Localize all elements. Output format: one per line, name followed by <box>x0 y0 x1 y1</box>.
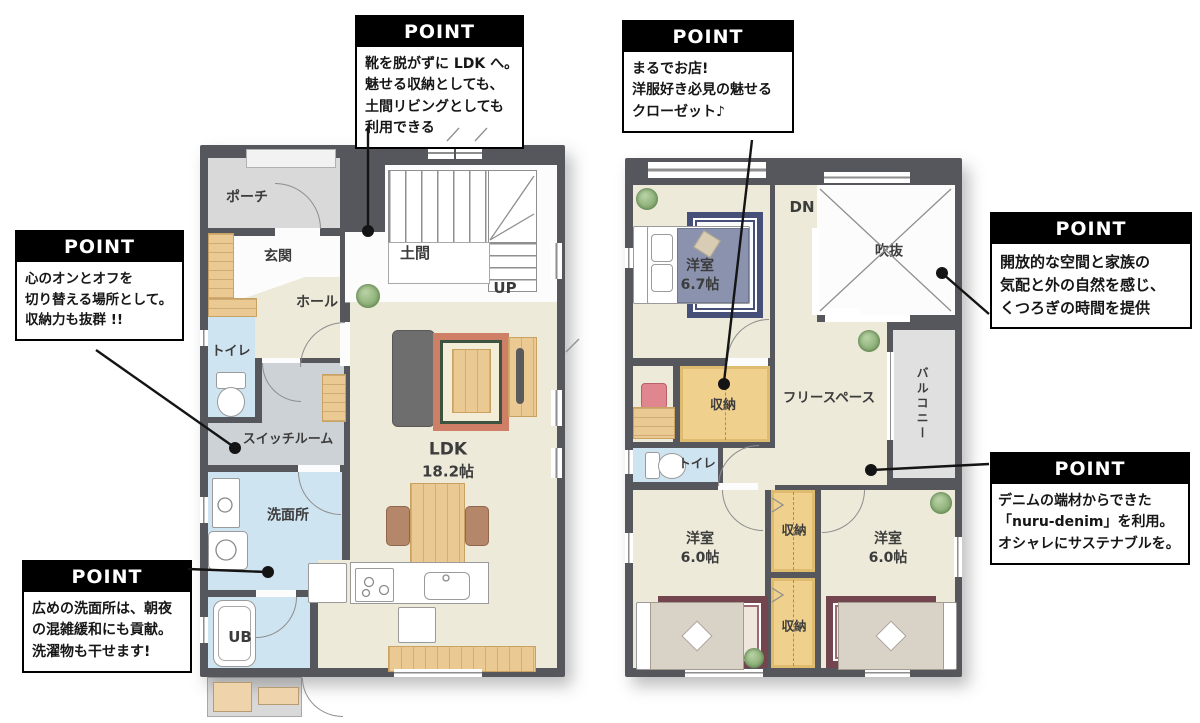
room-label-closet-main: 収納 <box>710 397 736 415</box>
label-dn: DN <box>789 197 814 217</box>
room-label-switch-room: スイッチルーム <box>243 431 334 449</box>
plant-icon <box>744 648 764 668</box>
dining-table <box>410 483 465 567</box>
callout-line: の混雑緩和にも貢献。 <box>32 620 182 641</box>
plant-icon <box>356 284 380 308</box>
room-label-balcony: バルコニー <box>914 367 930 442</box>
room-label-closet-lower: 収納 <box>781 619 806 636</box>
pillow <box>651 234 673 262</box>
window <box>625 248 633 268</box>
plant-icon <box>636 188 658 210</box>
callout-line: クローゼット♪ <box>632 102 784 123</box>
ldk-name: LDK <box>422 438 474 461</box>
bedroom-right-name: 洋室 <box>869 530 908 549</box>
stair-railing-v <box>812 228 819 312</box>
callout-title: POINT <box>992 214 1190 244</box>
void-lower-window <box>825 315 910 322</box>
callout-denim: POINT デニムの端材からできた 「nuru-denim」を利用。 オシャレに… <box>990 452 1190 565</box>
window <box>865 669 910 677</box>
stairs-winder <box>488 170 537 244</box>
callout-line: 土間リビングとしても <box>365 97 514 118</box>
ldk-size: 18.2帖 <box>422 461 474 481</box>
room-label-washroom: 洗面所 <box>267 507 309 526</box>
stairs-upper-run <box>388 170 490 244</box>
room-label-toilet1: トイレ <box>211 343 250 361</box>
callout-line: 靴を脱がずに LDK へ。 <box>365 54 514 75</box>
callout-line: 洋服好き必見の魅せる <box>632 80 784 101</box>
desk-chair <box>641 383 667 409</box>
shoe-closet-horizontal <box>208 298 257 317</box>
floor2-plan: 洋室 6.7帖 DN 吹抜 収納 フリースペース バルコニー トイレ 洋室 6.… <box>625 158 962 677</box>
bed-right-headboard <box>942 602 957 670</box>
stove <box>355 568 394 602</box>
plant-icon <box>930 492 952 514</box>
refrigerator <box>308 563 347 603</box>
callout-title: POINT <box>17 232 182 262</box>
window <box>200 617 208 643</box>
room-label-free-space: フリースペース <box>783 389 875 407</box>
balcony-door <box>887 352 894 440</box>
window <box>551 243 562 279</box>
callout-washroom: POINT 広めの洗面所は、朝夜 の混雑緩和にも貢献。 洗濯物も干せます! <box>22 560 192 673</box>
door-threshold <box>298 465 340 472</box>
room-label-closet-upper: 収納 <box>781 523 806 540</box>
room-label-doma: 土間 <box>400 243 430 263</box>
window <box>200 497 208 523</box>
sofa <box>392 330 435 427</box>
bedroom-main-size: 6.7帖 <box>681 276 720 295</box>
room-label-ldk: LDK 18.2帖 <box>422 438 474 481</box>
plant-icon <box>858 330 880 352</box>
callout-line: 気配と外の自然を感じ、 <box>1000 274 1182 297</box>
window <box>394 669 482 677</box>
toilet1-bowl <box>217 387 245 417</box>
callout-line: 収納力も抜群 !! <box>25 310 174 331</box>
dining-chair-right <box>465 506 489 546</box>
callout-line: 切り替える場所として。 <box>25 290 174 311</box>
room-label-bedroom-right: 洋室 6.0帖 <box>869 530 908 568</box>
room-label-void: 吹抜 <box>875 243 903 262</box>
washbasin <box>212 478 240 528</box>
bedroom-left-name: 洋室 <box>681 530 720 549</box>
desk <box>633 407 675 439</box>
callout-line: 「nuru-denim」を利用。 <box>998 512 1182 533</box>
label-up: UP <box>493 278 516 298</box>
callout-line: 心のオンとオフを <box>25 269 174 290</box>
callout-line: 広めの洗面所は、朝夜 <box>32 599 182 620</box>
porch-niche <box>246 149 336 168</box>
exterior-door-arc <box>302 678 343 717</box>
pillow <box>651 264 673 292</box>
callout-title: POINT <box>24 562 190 592</box>
switch-room-shelf <box>322 374 346 422</box>
room-label-hall: ホール <box>296 294 338 313</box>
bedroom-right-size: 6.0帖 <box>869 549 908 568</box>
callout-switch-room: POINT 心のオンとオフを 切り替える場所として。 収納力も抜群 !! <box>15 230 184 341</box>
room-label-ub: UB <box>228 627 252 647</box>
callout-line: まるでお店! <box>632 59 784 80</box>
room-label-toilet2: トイレ <box>678 456 716 473</box>
floor1-plan: ポーチ 玄関 土間 ホール UP トイレ スイッチルーム 洗面所 UB LDK … <box>200 145 565 677</box>
window <box>551 390 562 426</box>
stair-railing-h <box>812 308 860 315</box>
window <box>625 533 633 563</box>
callout-title: POINT <box>992 454 1188 484</box>
callout-line: くつろぎの時間を提供 <box>1000 297 1182 320</box>
window <box>954 537 962 577</box>
callout-line: 利用できる <box>365 118 514 139</box>
callout-title: POINT <box>357 17 522 47</box>
floor-plan-canvas: ポーチ 玄関 土間 ホール UP トイレ スイッチルーム 洗面所 UB LDK … <box>0 0 1200 723</box>
callout-line: 洗濯物も干せます! <box>32 642 182 663</box>
door-threshold <box>275 228 320 236</box>
window <box>685 669 763 677</box>
tv <box>516 348 524 404</box>
exterior-step-1 <box>213 682 252 712</box>
window <box>200 330 208 346</box>
coffee-table <box>452 349 491 413</box>
window <box>625 450 633 474</box>
room-label-genkan: 玄関 <box>264 248 292 267</box>
kitchen-island <box>398 607 436 643</box>
room-label-porch: ポーチ <box>226 189 268 208</box>
callout-line: オシャレにサステナブルを。 <box>998 534 1182 555</box>
callout-void: POINT 開放的な空間と家族の 気配と外の自然を感じ、 くつろぎの時間を提供 <box>990 212 1192 329</box>
exterior-step-2 <box>258 687 299 705</box>
bedroom-left-size: 6.0帖 <box>681 549 720 568</box>
callout-line: 魅せる収納としても、 <box>365 75 514 96</box>
callout-line: 開放的な空間と家族の <box>1000 251 1182 274</box>
window <box>648 162 766 178</box>
callout-title: POINT <box>624 22 792 52</box>
window <box>824 172 910 183</box>
kitchen-sink <box>424 572 470 600</box>
door-threshold <box>256 590 296 597</box>
washing-machine <box>208 531 248 570</box>
dining-chair-left <box>386 506 410 546</box>
callout-line: デニムの端材からできた <box>998 491 1182 512</box>
room-label-bedroom-left: 洋室 6.0帖 <box>681 530 720 568</box>
room-label-bedroom-main: 洋室 6.7帖 <box>681 257 720 295</box>
bedroom-main-name: 洋室 <box>681 257 720 276</box>
window <box>551 448 562 478</box>
callout-doma: POINT 靴を脱がずに LDK へ。 魅せる収納としても、 土間リビングとして… <box>355 15 524 149</box>
callout-closet: POINT まるでお店! 洋服好き必見の魅せる クローゼット♪ <box>622 20 794 133</box>
